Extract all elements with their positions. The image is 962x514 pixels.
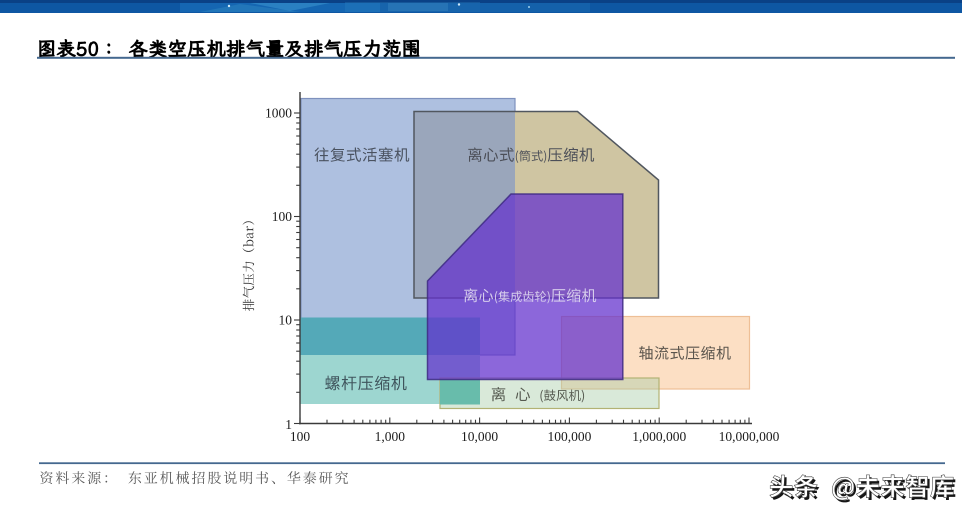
svg-text:1,000: 1,000 (375, 429, 406, 444)
svg-text:1000: 1000 (265, 106, 292, 121)
svg-text:100,000: 100,000 (547, 429, 591, 444)
svg-text:1,000,000: 1,000,000 (632, 429, 686, 444)
svg-text:100: 100 (290, 429, 311, 444)
svg-text:10,000,000: 10,000,000 (719, 429, 780, 444)
svg-text:10: 10 (279, 313, 293, 328)
svg-text:100: 100 (272, 209, 293, 224)
svg-text:10,000: 10,000 (461, 429, 498, 444)
